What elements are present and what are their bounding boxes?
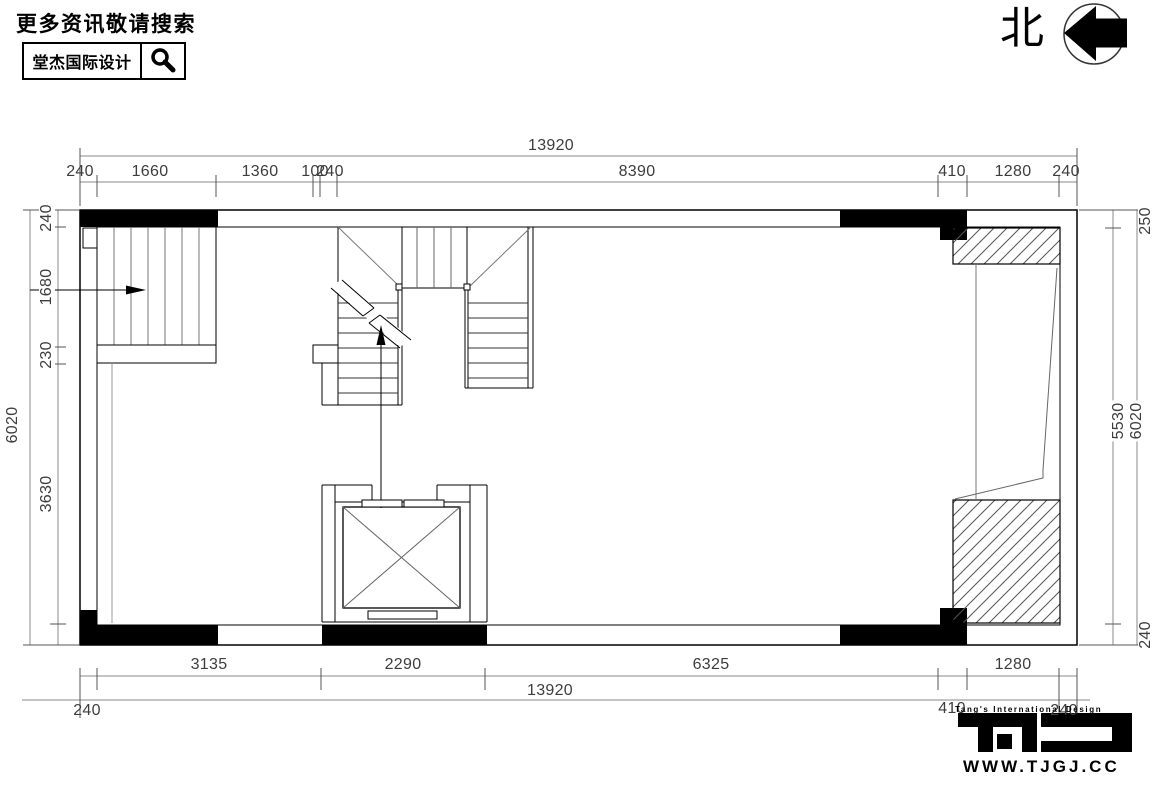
dim-label: 6020 bbox=[1129, 401, 1145, 442]
dim-label: 6325 bbox=[693, 657, 730, 673]
stair-central bbox=[313, 227, 533, 508]
dim-label: 3630 bbox=[39, 474, 55, 515]
dim-label: 240 bbox=[316, 164, 344, 180]
elevator-door bbox=[362, 500, 402, 507]
hatched-pier-top bbox=[953, 228, 1060, 264]
brand-logo-box: 堂杰国际设计 bbox=[22, 42, 186, 80]
dim-label: 13920 bbox=[527, 683, 573, 699]
dim-label: 1280 bbox=[995, 657, 1032, 673]
elevator bbox=[322, 485, 487, 622]
elevator-counterweight bbox=[368, 611, 437, 619]
dim-label: 240 bbox=[1138, 619, 1154, 651]
header-search-note: 更多资讯敬请搜索 bbox=[16, 8, 196, 38]
bay-window-right bbox=[953, 228, 1060, 623]
dim-label: 410 bbox=[938, 164, 966, 180]
footer-website: WWW.TJGJ.CC bbox=[963, 757, 1120, 777]
north-label: 北 bbox=[1000, 5, 1044, 53]
elevator-door bbox=[404, 500, 444, 507]
dim-label: 240 bbox=[1052, 164, 1080, 180]
page-root: 更多资讯敬请搜索 堂杰国际设计 北 13920 240 1660 1360 10… bbox=[0, 0, 1158, 800]
dim-label: 1280 bbox=[995, 164, 1032, 180]
north-arrow-icon bbox=[1064, 4, 1127, 64]
dim-label: 1680 bbox=[39, 267, 55, 308]
wall-fills bbox=[80, 210, 967, 645]
dim-label: 6020 bbox=[5, 405, 21, 446]
dim-label: 240 bbox=[73, 703, 101, 719]
window-leaf bbox=[955, 268, 1057, 499]
dim-label: 3135 bbox=[191, 657, 228, 673]
brand-name-label: 堂杰国际设计 bbox=[24, 44, 140, 78]
wall-outline bbox=[80, 210, 1077, 645]
dim-label: 230 bbox=[39, 339, 55, 371]
search-icon bbox=[142, 44, 184, 78]
dim-label: 1360 bbox=[242, 164, 279, 180]
dim-label: 240 bbox=[39, 202, 55, 234]
dim-label: 1660 bbox=[132, 164, 169, 180]
stair-newel-post bbox=[464, 284, 470, 290]
stair-newel-post bbox=[396, 284, 402, 290]
dim-label: 13920 bbox=[528, 138, 574, 154]
dim-label: 250 bbox=[1138, 205, 1154, 237]
dim-label: 5530 bbox=[1111, 401, 1127, 442]
dim-label: 240 bbox=[66, 164, 94, 180]
stair-direction-arrowhead bbox=[126, 286, 146, 295]
footer-tagline: Tang's International Design bbox=[955, 705, 1102, 714]
tid-logo-icon bbox=[958, 713, 1132, 752]
dim-label: 8390 bbox=[619, 164, 656, 180]
dim-label: 2290 bbox=[385, 657, 422, 673]
floor-plan-drawing bbox=[0, 0, 1158, 800]
hatched-pier-bottom bbox=[953, 500, 1060, 623]
stair-wall-jog bbox=[313, 345, 338, 363]
